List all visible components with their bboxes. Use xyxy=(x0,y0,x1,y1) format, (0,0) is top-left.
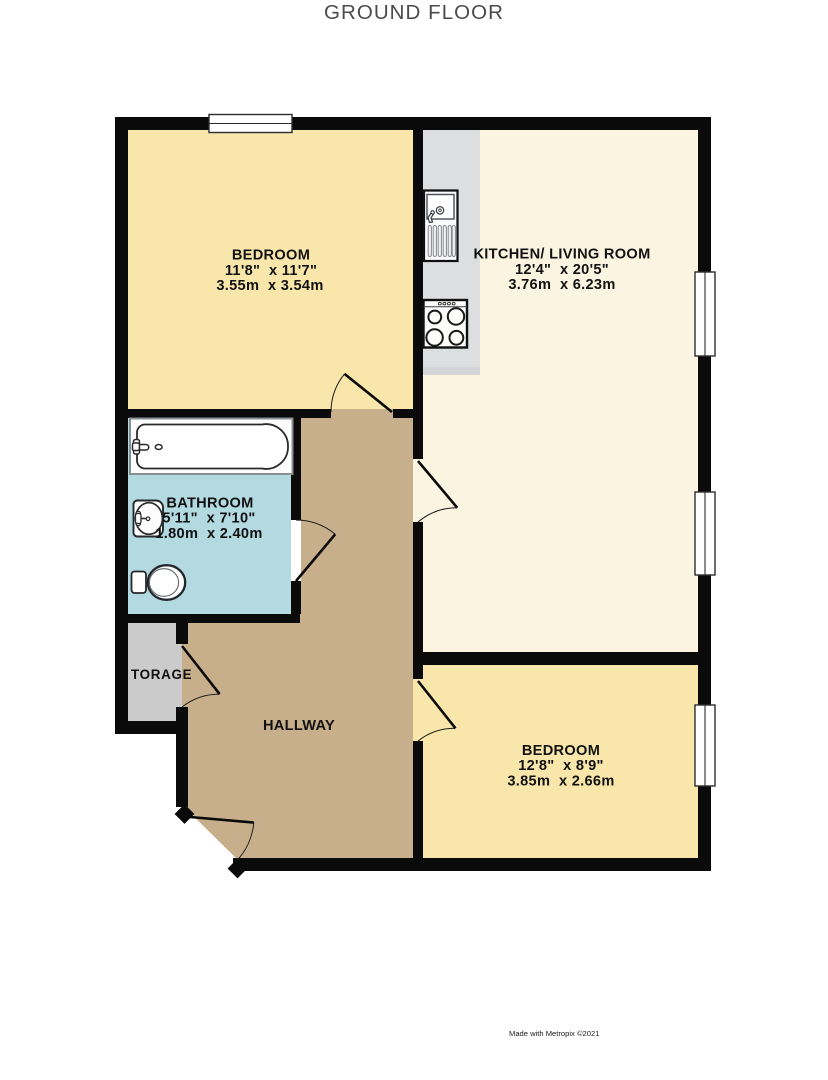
svg-text:TORAGE: TORAGE xyxy=(131,667,192,682)
svg-text:Made with Metropix ©2021: Made with Metropix ©2021 xyxy=(509,1029,599,1038)
svg-text:11'8" x 11'7": 11'8" x 11'7" xyxy=(225,263,317,279)
svg-text:BEDROOM: BEDROOM xyxy=(522,743,600,759)
svg-text:12'4" x 20'5": 12'4" x 20'5" xyxy=(515,262,609,278)
svg-text:5'11" x 7'10": 5'11" x 7'10" xyxy=(162,511,255,527)
svg-text:3.85m x 2.66m: 3.85m x 2.66m xyxy=(507,773,614,789)
svg-text:BEDROOM: BEDROOM xyxy=(232,248,310,264)
svg-text:HALLWAY: HALLWAY xyxy=(263,718,335,734)
svg-text:3.76m x 6.23m: 3.76m x 6.23m xyxy=(508,277,615,293)
svg-text:KITCHEN/ LIVING ROOM: KITCHEN/ LIVING ROOM xyxy=(473,247,650,263)
svg-text:GROUND FLOOR: GROUND FLOOR xyxy=(324,1,504,24)
svg-text:12'8" x 8'9": 12'8" x 8'9" xyxy=(518,758,604,774)
svg-text:3.55m x 3.54m: 3.55m x 3.54m xyxy=(216,278,323,294)
svg-text:1.80m x 2.40m: 1.80m x 2.40m xyxy=(155,526,262,542)
svg-text:BATHROOM: BATHROOM xyxy=(166,496,253,512)
